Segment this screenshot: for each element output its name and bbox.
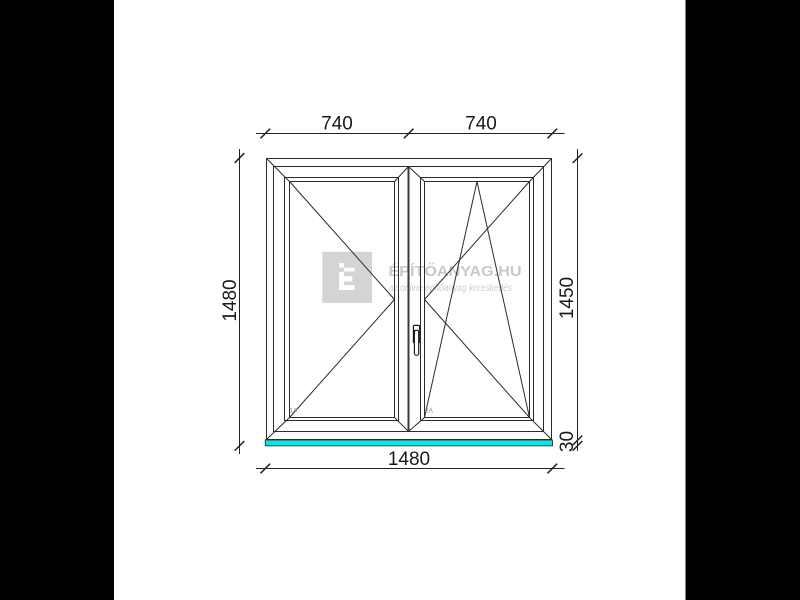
svg-text:1480: 1480 [388, 449, 430, 470]
svg-text:30: 30 [557, 431, 578, 452]
svg-text:1480: 1480 [220, 279, 241, 321]
svg-text:1A: 1A [290, 408, 299, 415]
svg-text:1450: 1450 [557, 277, 578, 319]
svg-text:740: 740 [321, 114, 353, 135]
svg-text:2A: 2A [425, 408, 434, 415]
svg-text:az online építőanyag kereskedé: az online építőanyag kereskedés [389, 283, 512, 294]
svg-text:740: 740 [465, 114, 497, 135]
